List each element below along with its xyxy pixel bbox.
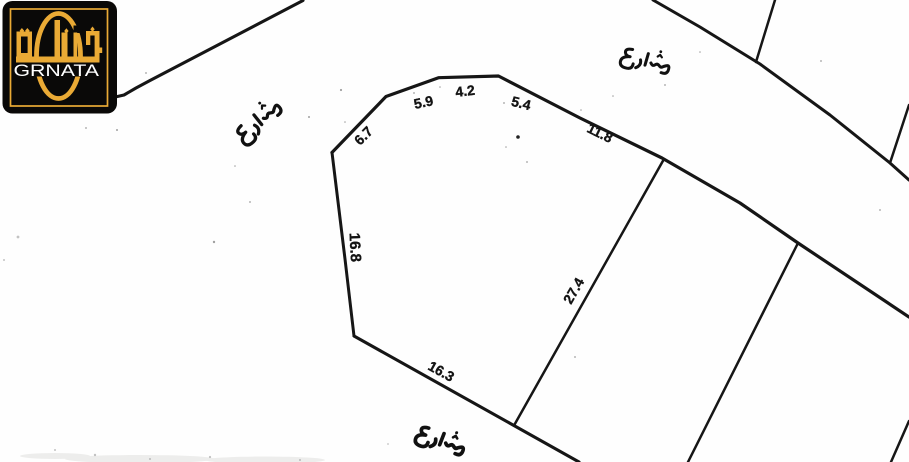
svg-text:4.2: 4.2 [454, 82, 475, 100]
svg-text:16.8: 16.8 [346, 232, 365, 262]
svg-text:GRNATA: GRNATA [14, 62, 100, 80]
